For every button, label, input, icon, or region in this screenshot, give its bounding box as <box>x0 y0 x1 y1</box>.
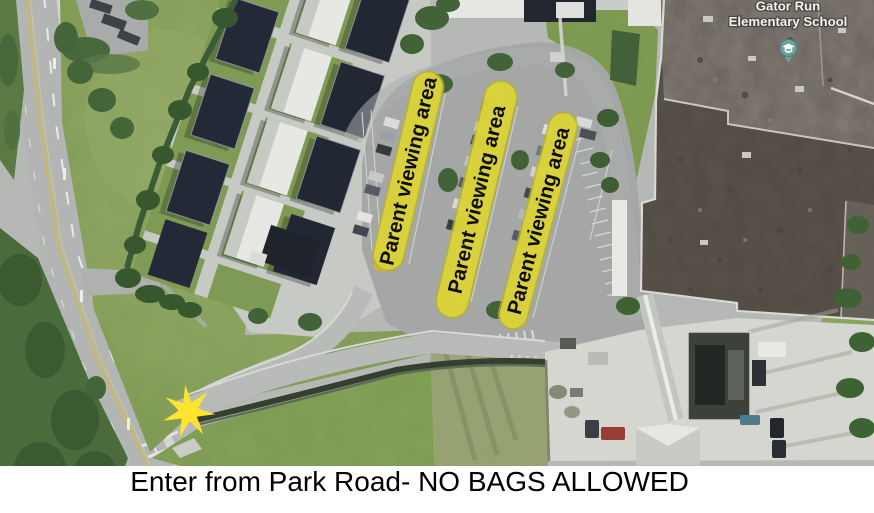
svg-text:Elementary School: Elementary School <box>729 14 848 29</box>
svg-text:Enter from Park Road- NO BAGS: Enter from Park Road- NO BAGS ALLOWED <box>130 466 689 497</box>
svg-text:Gator Run: Gator Run <box>756 0 820 14</box>
